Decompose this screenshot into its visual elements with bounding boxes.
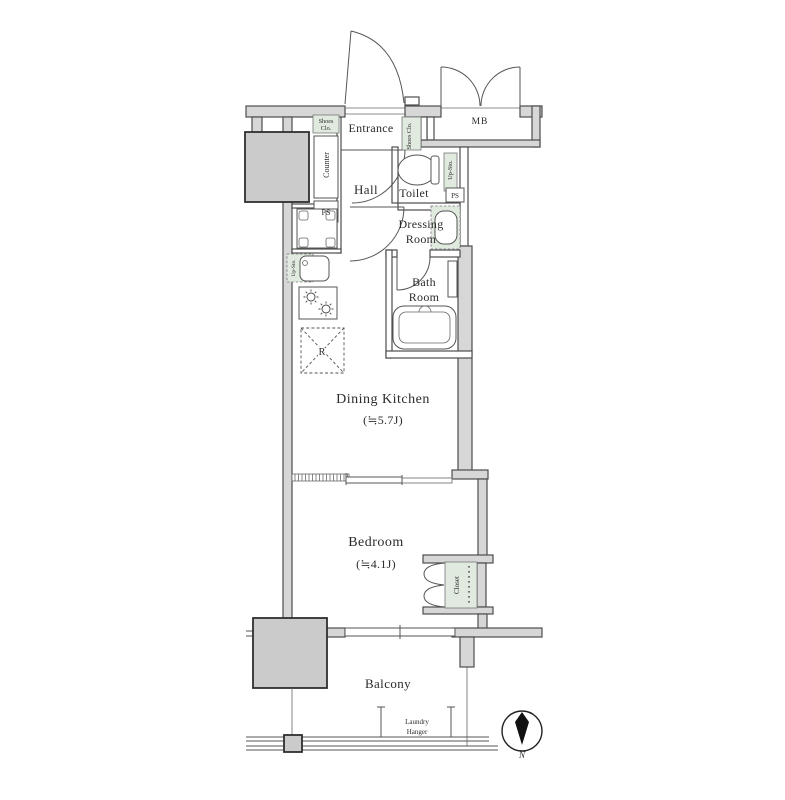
pillar-bottom-left xyxy=(253,618,327,688)
dining-kitchen-size-label: (≒5.7J) xyxy=(363,413,403,427)
balcony-divider-stub xyxy=(460,637,474,667)
dressing-room-label-2: Room xyxy=(406,232,437,246)
dressing-room-label-1: Dressing xyxy=(398,217,443,231)
meter-box-doors-icon xyxy=(441,67,520,106)
pipe-space-left-label: PS xyxy=(322,208,331,217)
door-latch-plate xyxy=(405,97,419,105)
bedroom-window xyxy=(345,625,455,639)
bedroom-label: Bedroom xyxy=(348,535,404,550)
stove-burners-icon xyxy=(299,287,337,319)
sliding-door-pocket xyxy=(292,474,349,481)
entrance-door-icon xyxy=(345,31,404,104)
laundry-hanger-label-1: Laundry xyxy=(405,718,429,726)
toilet-upper-storage-label: Up-Sto. xyxy=(447,160,454,180)
laundry-hanger-label-2: Hanger xyxy=(407,728,428,736)
bath-room-label-2: Room xyxy=(409,290,440,304)
north-label: N xyxy=(518,750,526,760)
shoes-closet-left-label-1: Shoes xyxy=(319,118,334,125)
bath-room-label-1: Bath xyxy=(412,275,436,289)
toilet-label: Toilet xyxy=(399,186,429,200)
kitchen-upper-storage-label: Up-Sto. xyxy=(291,259,297,277)
sliding-door-panel xyxy=(346,477,402,483)
closet-bifold-doors-icon xyxy=(424,563,444,607)
hall-label: Hall xyxy=(354,182,378,197)
bedroom-size-label: (≒4.1J) xyxy=(356,557,396,571)
dining-kitchen-label: Dining Kitchen xyxy=(336,392,430,407)
counter-label: Counter xyxy=(322,152,331,178)
pipe-space-right-label: PS xyxy=(451,192,459,200)
washing-machine-pan-icon xyxy=(297,209,337,248)
toilet-bowl-icon xyxy=(398,155,439,185)
floor-plan-drawing: Entrance Shoes Clo. Shoes Clo. MB Counte… xyxy=(0,0,785,800)
refrigerator-space-label: R xyxy=(319,347,326,358)
shoes-closet-left-label-2: Clo. xyxy=(321,125,332,132)
bath-shelf xyxy=(448,261,457,297)
shoes-closet-right-label: Shoes Clo. xyxy=(406,122,413,149)
balcony-label: Balcony xyxy=(365,676,411,691)
railing-post xyxy=(284,735,302,752)
closet-box xyxy=(445,562,477,608)
closet-label: Closet xyxy=(453,576,461,594)
entrance-label: Entrance xyxy=(348,121,393,135)
pillar-top-left xyxy=(245,132,309,202)
meter-box-label: MB xyxy=(472,117,489,127)
sliding-partition xyxy=(292,473,452,485)
floor-plan-page: Entrance Shoes Clo. Shoes Clo. MB Counte… xyxy=(0,0,785,800)
north-compass-icon xyxy=(502,711,542,751)
